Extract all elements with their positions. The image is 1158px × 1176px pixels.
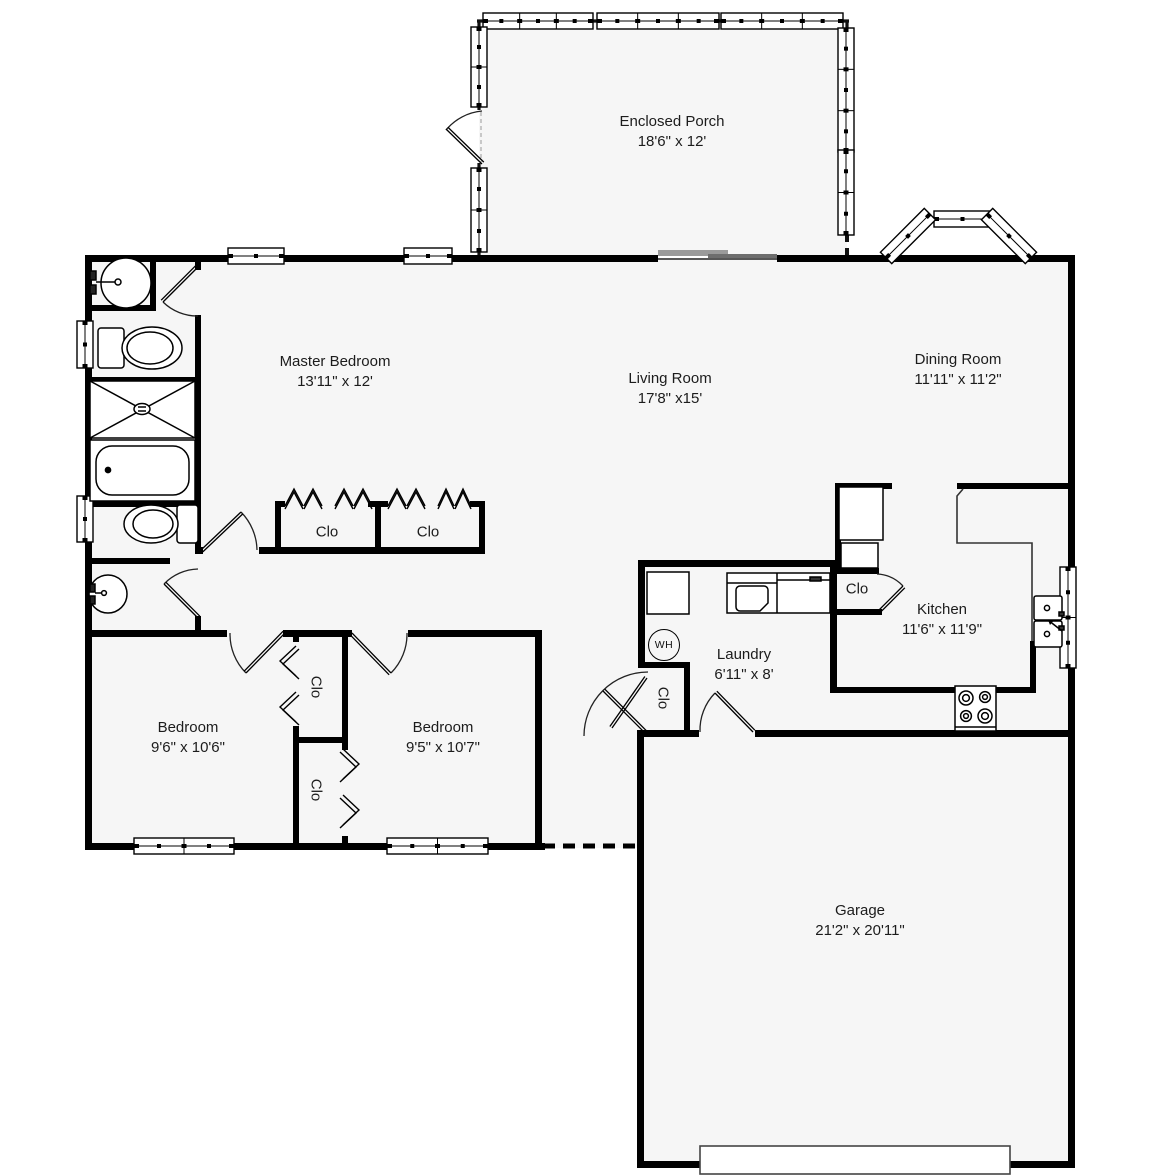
room-name: Garage xyxy=(835,902,885,919)
shower-icon xyxy=(90,381,195,438)
room-name: Kitchen xyxy=(917,601,967,618)
floor-plan: Enclosed Porch 18'6" x 12' Master Bedroo… xyxy=(0,0,1158,1176)
window-icon xyxy=(77,321,93,368)
cabinet-icon xyxy=(841,543,878,568)
kitchen-sink-icon xyxy=(1034,596,1064,647)
room-label-kitchen: Kitchen 11'6" x 11'9" xyxy=(902,600,982,641)
window-icon xyxy=(404,248,452,264)
room-name: Enclosed Porch xyxy=(619,113,724,130)
room-label-master-bedroom: Master Bedroom 13'11" x 12' xyxy=(280,352,391,393)
window-icon xyxy=(228,248,284,264)
room-label-bedroom-1: Bedroom 9'6" x 10'6" xyxy=(151,718,225,759)
room-name: Living Room xyxy=(628,370,711,387)
washer-dryer-icon xyxy=(727,573,830,613)
floor-plan-drawing xyxy=(0,0,1158,1176)
closet-label: Clo xyxy=(308,676,325,699)
room-dims: 17'8" x15' xyxy=(628,389,711,409)
closet-label: Clo xyxy=(846,581,869,598)
closet-label: Clo xyxy=(308,779,325,802)
floor-fills xyxy=(88,22,1072,1164)
room-label-enclosed-porch: Enclosed Porch 18'6" x 12' xyxy=(619,112,724,153)
room-dims: 11'6" x 11'9" xyxy=(902,620,982,640)
window-icon xyxy=(387,838,488,854)
room-name: Bedroom xyxy=(158,719,219,736)
water-heater-icon: WH xyxy=(648,629,680,661)
window-icon xyxy=(471,168,487,252)
window-icon xyxy=(721,13,843,29)
room-label-laundry: Laundry 6'11" x 8' xyxy=(714,645,773,686)
room-name: Laundry xyxy=(717,646,771,663)
room-dims: 6'11" x 8' xyxy=(714,665,773,685)
freezer-icon xyxy=(647,572,689,614)
refrigerator-icon xyxy=(839,487,883,540)
closet-label: Clo xyxy=(316,524,339,541)
room-name: Dining Room xyxy=(915,351,1002,368)
room-dims: 11'11" x 11'2" xyxy=(914,370,1001,390)
window-icon xyxy=(838,150,854,235)
garage-floor xyxy=(640,732,1072,1164)
laundry-fixtures xyxy=(647,572,830,614)
door-swing-icon xyxy=(446,111,484,164)
room-name: Bedroom xyxy=(413,719,474,736)
window-icon xyxy=(134,838,234,854)
room-label-bedroom-2: Bedroom 9'5" x 10'7" xyxy=(406,718,480,759)
stove-icon xyxy=(955,686,996,731)
window-icon xyxy=(471,27,487,107)
garage-door xyxy=(700,1146,1010,1174)
room-label-living-room: Living Room 17'8" x15' xyxy=(628,369,711,410)
water-heater-label: WH xyxy=(655,639,674,651)
room-label-dining-room: Dining Room 11'11" x 11'2" xyxy=(914,350,1001,391)
sink-icon xyxy=(89,575,127,613)
window-icon xyxy=(483,13,593,29)
room-label-garage: Garage 21'2" x 20'11" xyxy=(815,901,905,942)
toilet-icon xyxy=(98,327,182,369)
room-dims: 9'5" x 10'7" xyxy=(406,738,480,758)
room-name: Master Bedroom xyxy=(280,353,391,370)
window-icon xyxy=(77,496,93,542)
closet-label: Clo xyxy=(655,687,672,710)
room-dims: 21'2" x 20'11" xyxy=(815,921,905,941)
room-dims: 18'6" x 12' xyxy=(619,132,724,152)
bathtub-icon xyxy=(90,440,195,501)
window-icon xyxy=(597,13,719,29)
toilet-icon xyxy=(124,505,198,543)
room-dims: 13'11" x 12' xyxy=(280,372,391,392)
window-icon xyxy=(838,28,854,152)
room-dims: 9'6" x 10'6" xyxy=(151,738,225,758)
closet-label: Clo xyxy=(417,524,440,541)
